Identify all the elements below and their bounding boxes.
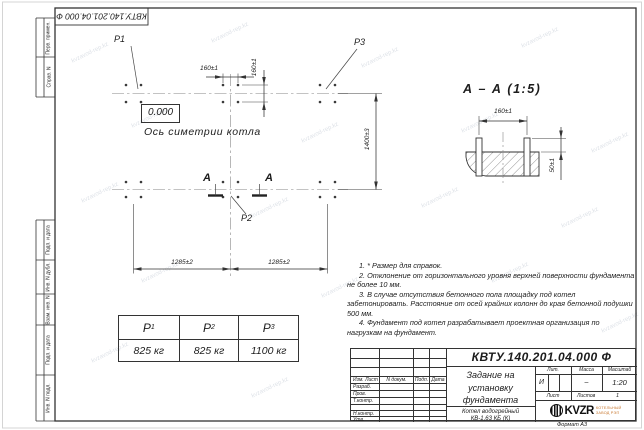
logo-subtext: КОТЕЛЬНЫЙ ЗАВОД РЭП <box>596 406 622 415</box>
margin-box-inv-podl: Инв. N подл. <box>43 375 55 421</box>
dim-1400: 1400±3 <box>365 119 372 159</box>
logo-sub-line: ЗАВОД РЭП <box>596 411 622 415</box>
margin-label: Справ. N <box>46 67 52 88</box>
load-table-value-p2: 825 кг <box>179 339 239 361</box>
margin-label: Инв. N дубл. <box>46 262 52 291</box>
top-left-stamp-number: КВТУ.140.201.04.000 Ф <box>56 12 147 21</box>
sheets-label: Листов <box>577 394 595 399</box>
title-line: установку <box>446 382 535 395</box>
scale-label: Масштаб <box>602 368 637 373</box>
col-n-dokum: N докум. <box>380 378 413 383</box>
p-base: P <box>143 321 151 335</box>
watermark-text: kvzavod-rep.kz <box>301 121 340 144</box>
load-table: P1 P2 P3 825 кг 825 кг 1100 кг <box>118 315 299 362</box>
dim-1285-left: 1285±2 <box>160 260 204 267</box>
logo-text: KVZR <box>565 405 594 417</box>
row-prov: Пров. <box>353 392 366 397</box>
watermark-text: kvzavod-rep.kz <box>251 376 290 399</box>
p-sub: 1 <box>151 324 155 331</box>
note-1: 1. * Размер для справок. <box>347 261 635 271</box>
section-letter-right: А <box>265 173 273 184</box>
p-sub: 2 <box>211 324 215 331</box>
watermark-text: kvzavod-rep.kz <box>361 46 400 69</box>
dimension-lines <box>134 70 377 269</box>
product-name: Котел водогрейный КВ-1,63 КБ (К) <box>446 409 535 423</box>
load-label-p3: P3 <box>354 38 365 47</box>
dim-50-section: 50±1 <box>550 150 557 180</box>
kvzr-emblem-icon <box>550 404 563 417</box>
margin-box-perv-primen: Перв. примен. <box>43 18 55 57</box>
p-sub: 3 <box>271 324 275 331</box>
mass-value: – <box>571 379 602 386</box>
row-utv: Утв. <box>353 418 364 423</box>
lit-label: Лит. <box>535 368 571 373</box>
margin-box-sprav-n: Справ. N <box>43 57 55 97</box>
margin-box-podp-data-2: Подп. и дата <box>43 325 55 375</box>
load-table-header-p3: P3 <box>238 316 298 339</box>
section-letter-left: А <box>203 173 211 184</box>
product-line: Котел водогрейный <box>446 409 535 416</box>
note-4: 4. Фундамент под котел разрабатывает про… <box>347 318 635 337</box>
concrete-pad <box>466 152 539 176</box>
title-line: Задание на <box>446 369 535 382</box>
format-note: Формат А3 <box>548 423 596 429</box>
margin-box-vzam-inv: Взам. инв. N <box>43 294 55 325</box>
boiler-axis-label: Ось симетрии котла <box>144 127 261 138</box>
load-table-header-p2: P2 <box>179 316 239 339</box>
note-3: 3. В случае отсутствия бетонного пола пл… <box>347 290 635 319</box>
section-cut-marks <box>208 184 267 196</box>
dim-1285-right: 1285±2 <box>257 260 301 267</box>
p-base: P <box>203 321 211 335</box>
watermark-text: kvzavod-rep.kz <box>81 181 120 204</box>
note-2: 2. Отклонение от горизонтального уровня … <box>347 271 635 290</box>
margin-label: Подп. и дата <box>46 225 52 254</box>
scale-value: 1:20 <box>602 379 637 387</box>
company-logo: KVZR КОТЕЛЬНЫЙ ЗАВОД РЭП <box>535 400 636 421</box>
load-label-p2: P2 <box>241 214 252 223</box>
anchor-bolt-points <box>125 84 337 199</box>
dim-160-horizontal: 160±1 <box>193 66 225 73</box>
margin-label: Взам. инв. N <box>46 295 52 324</box>
anchor-bolt-left <box>476 138 482 176</box>
watermark-text: kvzavod-rep.kz <box>561 206 600 229</box>
dim-160-vertical: 160±1 <box>252 52 259 82</box>
watermark-text: kvzavod-rep.kz <box>71 41 110 64</box>
load-table-header-p1: P1 <box>119 316 179 339</box>
watermark-text: kvzavod-rep.kz <box>421 186 460 209</box>
dim-160-section: 160±1 <box>487 109 519 116</box>
watermark-text: kvzavod-rep.kz <box>521 26 560 49</box>
row-razrab: Разраб. <box>353 385 371 390</box>
margin-label: Инв. N подл. <box>46 383 52 412</box>
col-podp: Подп. <box>414 378 429 383</box>
row-nkontr: Н.контр. <box>353 412 374 417</box>
anchor-bolt-right <box>524 138 530 176</box>
document-title: Задание на установку фундамента <box>446 369 535 407</box>
mass-label: Масса <box>571 368 602 373</box>
title-line: фундамента <box>446 394 535 407</box>
elevation-mark: 0.000 <box>141 104 180 123</box>
watermark-text: kvzavod-rep.kz <box>211 21 250 44</box>
sheets-value: 1 <box>616 394 619 400</box>
product-line: КВ-1,63 КБ (К) <box>446 416 535 423</box>
col-izm-list: Изм. Лист <box>352 378 379 383</box>
margin-box-podp-data-1: Подп. и дата <box>43 220 55 260</box>
drawing-sheet: kvzavod-rep.kz kvzavod-rep.kz kvzavod-re… <box>0 0 644 430</box>
margin-label: Перв. примен. <box>46 21 52 54</box>
margin-box-inv-dubl: Инв. N дубл. <box>43 260 55 294</box>
row-tkontr: Т.контр. <box>353 399 373 404</box>
col-data: Дата <box>430 378 446 383</box>
watermark-text: kvzavod-rep.kz <box>251 196 290 219</box>
load-table-value-p1: 825 кг <box>119 339 179 361</box>
notes-block: 1. * Размер для справок. 2. Отклонение о… <box>347 261 635 337</box>
title-block: КВТУ.140.201.04.000 Ф Изм. Лист N докум.… <box>350 348 636 421</box>
p-base: P <box>263 321 271 335</box>
watermark-text: kvzavod-rep.kz <box>591 131 630 154</box>
load-table-value-p3: 1100 кг <box>238 339 298 361</box>
lit-value: И <box>535 379 548 386</box>
title-block-doc-number: КВТУ.140.201.04.000 Ф <box>446 351 637 363</box>
section-view-title: А – А (1:5) <box>463 83 541 96</box>
sheet-label: Лист <box>535 394 571 399</box>
margin-label: Подп. и дата <box>46 335 52 364</box>
load-label-p1: P1 <box>114 35 125 44</box>
